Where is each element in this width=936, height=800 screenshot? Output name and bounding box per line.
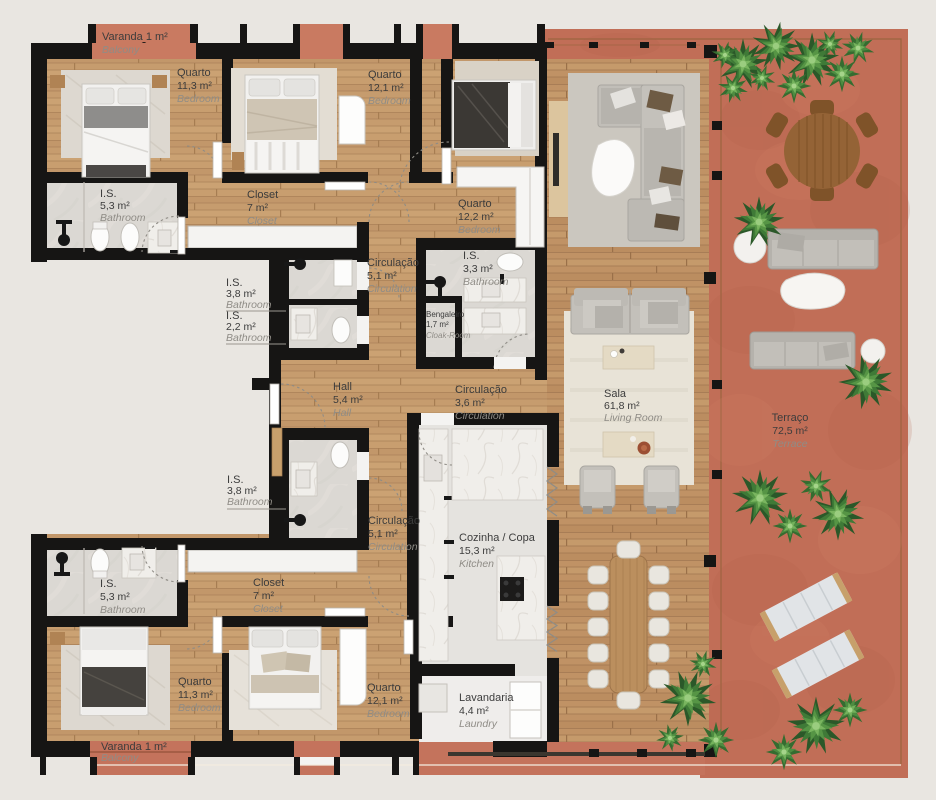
svg-text:Circulação: Circulação <box>367 257 419 269</box>
svg-text:I.S.: I.S. <box>463 250 480 262</box>
svg-text:Circulation: Circulation <box>455 410 505 422</box>
svg-text:Bathroom: Bathroom <box>100 212 146 224</box>
svg-text:Cloak-Room: Cloak-Room <box>426 331 471 340</box>
svg-text:Cozinha / Copa: Cozinha / Copa <box>459 532 536 544</box>
svg-text:Circulação: Circulação <box>455 384 507 396</box>
svg-text:Quarto: Quarto <box>178 676 212 688</box>
svg-text:11,3 m²: 11,3 m² <box>178 689 213 701</box>
svg-text:15,3 m²: 15,3 m² <box>459 545 495 557</box>
svg-text:Circulação: Circulação <box>368 515 420 527</box>
svg-text:12,1 m²: 12,1 m² <box>367 695 403 707</box>
svg-text:Balcony: Balcony <box>102 44 140 56</box>
svg-text:I.S.: I.S. <box>100 578 117 590</box>
svg-text:Bathroom: Bathroom <box>463 276 509 288</box>
svg-text:Bedroom: Bedroom <box>177 93 220 105</box>
svg-text:Bedroom: Bedroom <box>367 708 410 720</box>
svg-text:Terraço: Terraço <box>772 412 809 424</box>
svg-text:Bedroom: Bedroom <box>178 702 221 714</box>
svg-text:4,4 m²: 4,4 m² <box>459 705 489 717</box>
svg-text:7 m²: 7 m² <box>247 202 269 214</box>
svg-text:Balcony: Balcony <box>101 752 139 764</box>
svg-text:3,6 m²: 3,6 m² <box>455 397 485 409</box>
svg-text:Bathroom: Bathroom <box>226 332 272 344</box>
svg-text:12,1 m²: 12,1 m² <box>368 82 404 94</box>
svg-text:61,8 m²: 61,8 m² <box>604 400 640 412</box>
svg-text:I.S.: I.S. <box>100 188 117 200</box>
svg-text:Quarto: Quarto <box>368 69 402 81</box>
svg-text:Bedroom: Bedroom <box>368 95 411 107</box>
svg-text:12,2 m²: 12,2 m² <box>458 211 494 223</box>
svg-text:Quarto: Quarto <box>177 67 211 79</box>
svg-text:5,3 m²: 5,3 m² <box>100 200 130 212</box>
svg-text:5,4 m²: 5,4 m² <box>333 394 363 406</box>
svg-text:Quarto: Quarto <box>367 682 401 694</box>
svg-text:Sala: Sala <box>604 388 627 400</box>
svg-text:11,3 m²: 11,3 m² <box>177 80 212 92</box>
svg-text:Circulation: Circulation <box>368 541 418 553</box>
svg-text:Bathroom: Bathroom <box>227 496 273 508</box>
svg-text:Bengaleiro: Bengaleiro <box>426 310 465 319</box>
svg-text:Kitchen: Kitchen <box>459 558 494 570</box>
svg-text:1,7 m²: 1,7 m² <box>426 320 449 329</box>
svg-text:Lavandaria: Lavandaria <box>459 692 514 704</box>
svg-text:5,3 m²: 5,3 m² <box>100 591 130 603</box>
svg-text:Bedroom: Bedroom <box>458 224 501 236</box>
svg-text:Hall: Hall <box>333 407 352 419</box>
svg-text:5,1 m²: 5,1 m² <box>367 270 397 282</box>
svg-text:Circulation: Circulation <box>367 283 417 295</box>
svg-text:Living Room: Living Room <box>604 412 663 424</box>
svg-text:Hall: Hall <box>333 381 352 393</box>
svg-text:Quarto: Quarto <box>458 198 492 210</box>
svg-text:Bathroom: Bathroom <box>100 604 146 616</box>
svg-text:5,1 m²: 5,1 m² <box>368 528 398 540</box>
svg-text:72,5 m²: 72,5 m² <box>772 425 808 437</box>
svg-text:Closet: Closet <box>253 603 284 615</box>
svg-text:7 m²: 7 m² <box>253 590 275 602</box>
svg-text:Closet: Closet <box>247 189 278 201</box>
svg-text:Closet: Closet <box>247 215 278 227</box>
svg-text:Closet: Closet <box>253 577 284 589</box>
svg-text:Terrace: Terrace <box>772 438 807 450</box>
svg-text:Laundry: Laundry <box>459 718 498 730</box>
svg-text:Varanda 1 m²: Varanda 1 m² <box>102 31 168 43</box>
svg-text:3,3 m²: 3,3 m² <box>463 263 493 275</box>
